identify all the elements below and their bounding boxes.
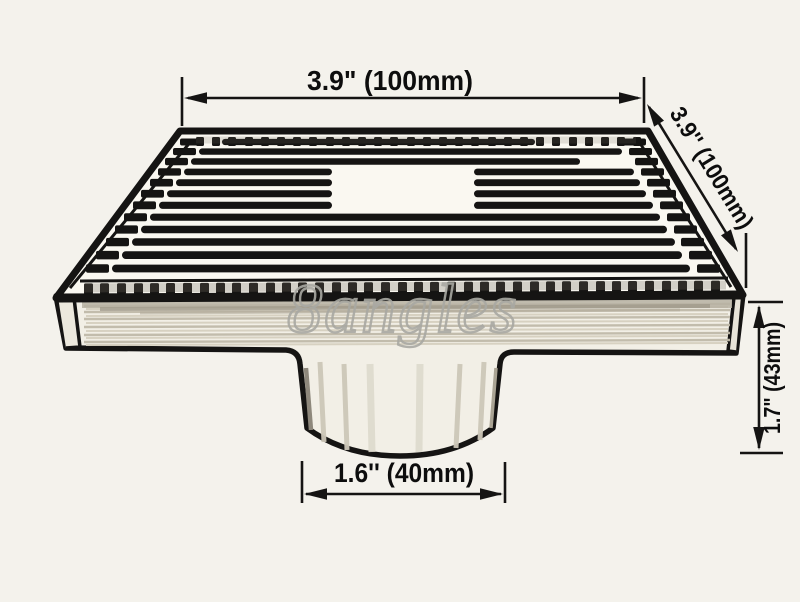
svg-text:3.9" (100mm): 3.9" (100mm) — [307, 65, 473, 96]
svg-text:1.6'' (40mm): 1.6'' (40mm) — [334, 458, 474, 488]
svg-text:1.7" (43mm): 1.7" (43mm) — [759, 322, 785, 434]
svg-text:8angles: 8angles — [287, 271, 519, 348]
